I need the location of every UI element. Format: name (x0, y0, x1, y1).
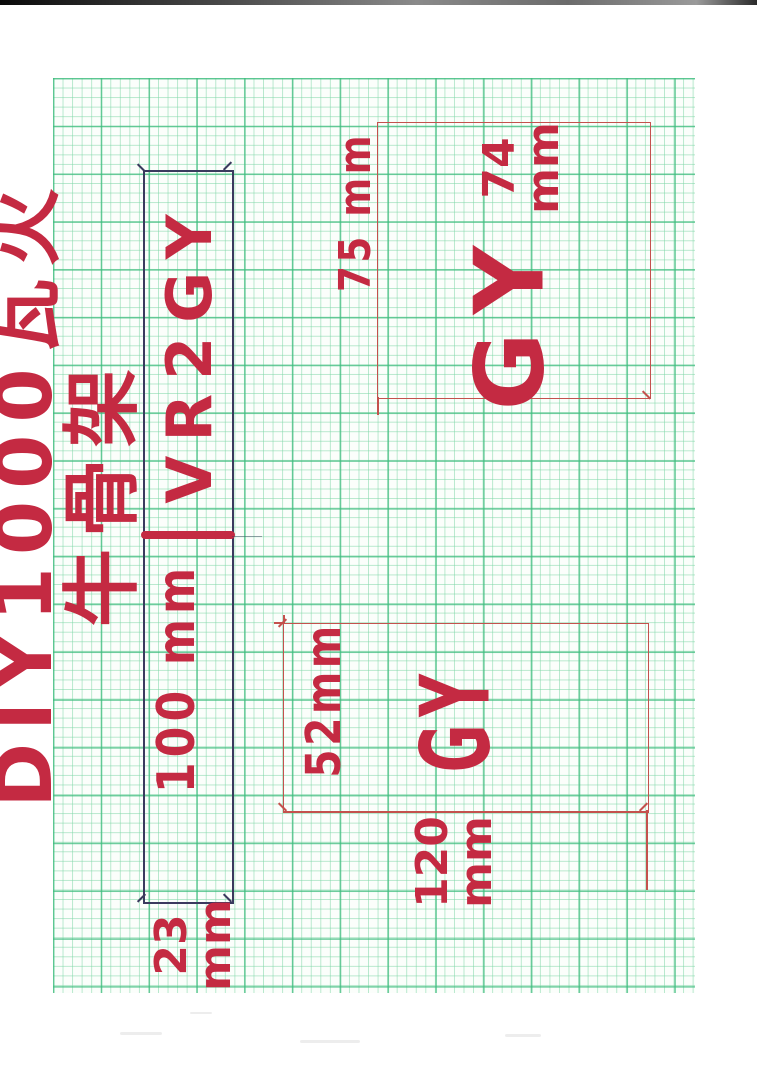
rect-label: GY (410, 665, 505, 772)
pencil-extension-line (232, 536, 262, 537)
scan-smudge (120, 1032, 162, 1035)
square-edge-extension (377, 397, 379, 415)
strip-width-dimension: 23 mm (150, 899, 238, 991)
square-top-dimension: 74 mm (478, 122, 566, 214)
strip-length-dimension: 100 mm (151, 563, 203, 793)
scan-smudge (190, 1012, 212, 1014)
scanner-edge-artifact (0, 0, 757, 5)
strip-divider-mark (141, 531, 235, 539)
scan-smudge (300, 1040, 360, 1043)
strip-label: VR2GY (159, 200, 221, 503)
rect-length-dimension: 120 mm (411, 816, 499, 908)
square-label: GY (464, 226, 559, 411)
rect-width-dimension: 52mm (300, 622, 348, 777)
square-side-dimension: 75 mm (334, 132, 378, 292)
page-title: DIY1000瓦火牛骨架 (0, 146, 142, 839)
rect-right-edge-extension (646, 810, 648, 890)
scan-smudge (505, 1034, 541, 1037)
scanned-sketch-page: DIY1000瓦火牛骨架 VR2GY 100 mm 23 mm 75 mm 74… (0, 0, 757, 1071)
